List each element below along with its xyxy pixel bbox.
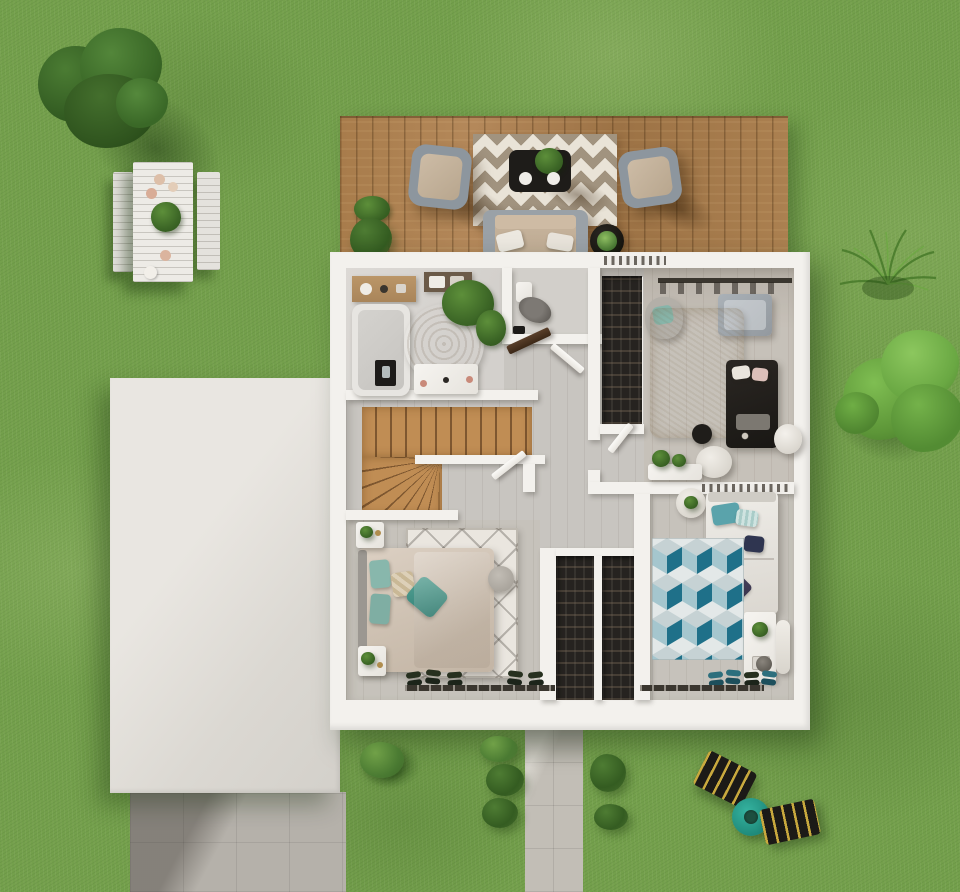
- plate: [168, 182, 178, 192]
- plate: [519, 172, 532, 185]
- outdoor-armchair-right: [616, 145, 683, 210]
- bed-headboard: [708, 492, 776, 502]
- side-table-plant: [597, 231, 617, 251]
- shower-glass: [382, 366, 390, 378]
- tree-foliage: [116, 78, 168, 128]
- patterned-pillow: [735, 509, 759, 528]
- garage-roof: [110, 378, 340, 793]
- desk-plant: [752, 622, 768, 637]
- driveway: [130, 792, 346, 892]
- console-plant-2: [672, 454, 686, 467]
- garden-scene: [0, 0, 960, 892]
- bedroom-two-round-table: [676, 488, 706, 518]
- coffee-table: [509, 150, 571, 192]
- master-wardrobe-left: [556, 556, 594, 700]
- bed-pillow: [731, 365, 751, 380]
- ornamental-grass-tuft: [836, 226, 940, 318]
- plate: [146, 188, 157, 199]
- bedroom-two-sliding-door-dashes: [702, 484, 790, 492]
- toilet-brush: [513, 326, 525, 334]
- wall-wardrobe-mid: [594, 556, 602, 700]
- wall-stairs-south: [346, 510, 458, 520]
- plate: [160, 250, 171, 261]
- garden-bush: [594, 804, 628, 830]
- master-pouf: [488, 566, 514, 592]
- black-pouf: [692, 424, 712, 444]
- duvet-fold: [414, 552, 490, 668]
- hanging-clothes: [660, 282, 782, 294]
- counter-sink: [360, 283, 372, 295]
- sofa-back: [495, 215, 576, 229]
- garden-bush: [482, 798, 518, 828]
- armchair-cushion: [417, 153, 463, 201]
- picnic-set: [108, 158, 226, 286]
- picnic-bench-left: [113, 172, 133, 272]
- tree-foliage: [891, 384, 960, 452]
- nightstand-north: [356, 522, 384, 548]
- stairs-upper-flight: [362, 407, 532, 457]
- wall-hall-east: [588, 268, 600, 440]
- bathroom-wood-counter: [352, 276, 416, 302]
- counter-accessory: [380, 285, 388, 293]
- nightstand-lamp: [375, 530, 381, 536]
- plate: [154, 174, 165, 185]
- tree-northwest: [38, 28, 168, 153]
- house-upper-floor: [330, 252, 810, 730]
- bedroom-two-sliding-door-track: [640, 685, 764, 691]
- garden-bush: [360, 742, 404, 778]
- terrace-deck: [340, 116, 788, 258]
- basin-faucet: [443, 377, 449, 383]
- wall-hall-corner: [523, 464, 535, 492]
- plate: [144, 266, 157, 279]
- bathtub: [352, 304, 410, 396]
- black-double-bed: [726, 360, 778, 448]
- table-plant: [535, 148, 563, 174]
- towel: [429, 276, 445, 288]
- vanity-soap: [420, 380, 427, 387]
- teal-pillow: [369, 559, 391, 589]
- bathroom-plant-2: [476, 310, 506, 346]
- plate: [547, 172, 560, 185]
- master-wardrobe-right: [602, 556, 634, 700]
- tree-east: [835, 322, 960, 467]
- wall-wardrobe-east: [634, 494, 650, 700]
- wall-wardrobe-top: [556, 548, 636, 556]
- counter-accessory: [396, 284, 406, 293]
- garden-bush: [590, 754, 626, 792]
- master-sliding-door-track: [405, 685, 555, 691]
- walkway-path: [525, 724, 583, 892]
- round-table-plant: [684, 496, 698, 509]
- outdoor-armchair-left: [407, 143, 473, 211]
- stairs-winder: [362, 457, 442, 515]
- bed-pillow: [751, 367, 768, 382]
- round-vase: [774, 424, 802, 454]
- teal-pillow: [369, 593, 391, 624]
- vanity-soap: [466, 376, 473, 383]
- nightstand-lamp: [377, 662, 383, 668]
- bed-floral-motif: [738, 430, 752, 442]
- armchair-cushion: [626, 155, 673, 199]
- nightstand-plant: [361, 652, 375, 665]
- garden-bush: [480, 736, 518, 762]
- garden-bush: [486, 764, 524, 796]
- desk-chair: [776, 620, 790, 674]
- picnic-bench-right: [197, 172, 220, 270]
- nightstand-south: [358, 646, 386, 676]
- outdoor-sofa: [483, 210, 588, 258]
- table-centerpiece-plant: [151, 202, 181, 232]
- bed-blanket-fold: [736, 414, 770, 430]
- table-plant-dark: [744, 810, 758, 824]
- nightstand-plant: [360, 526, 373, 538]
- navy-pillow: [743, 535, 765, 553]
- bedroom-two-cube-rug: [652, 538, 744, 660]
- console-plant: [652, 450, 670, 467]
- walk-in-closet-shelves: [602, 276, 642, 424]
- vanity-washbasin: [414, 364, 478, 394]
- top-wall-vent-dashes: [604, 256, 666, 265]
